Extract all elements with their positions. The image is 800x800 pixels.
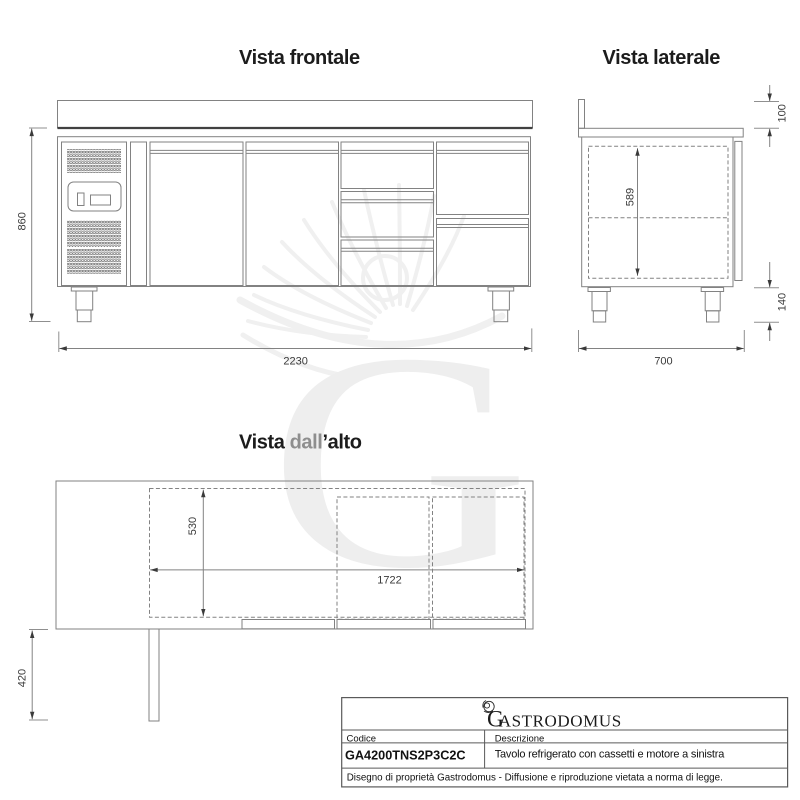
svg-text:Vista laterale: Vista laterale xyxy=(603,47,721,69)
svg-text:1722: 1722 xyxy=(377,575,401,587)
svg-text:Disegno di proprietà Gastrodom: Disegno di proprietà Gastrodomus - Diffu… xyxy=(347,772,723,783)
svg-text:ASTRODOMUS: ASTRODOMUS xyxy=(499,712,622,731)
svg-text:Descrizione: Descrizione xyxy=(495,734,545,745)
svg-text:589: 589 xyxy=(625,188,637,206)
svg-text:Codice: Codice xyxy=(347,733,377,744)
svg-text:140: 140 xyxy=(776,293,788,311)
svg-text:Vista dall’alto: Vista dall’alto xyxy=(239,432,362,454)
svg-text:860: 860 xyxy=(17,212,29,230)
svg-text:2230: 2230 xyxy=(283,355,307,367)
svg-text:Tavolo refrigerato con cassett: Tavolo refrigerato con cassetti e motore… xyxy=(495,749,726,761)
svg-text:700: 700 xyxy=(654,355,672,367)
svg-text:530: 530 xyxy=(187,517,199,535)
svg-text:100: 100 xyxy=(776,104,788,122)
svg-text:Vista frontale: Vista frontale xyxy=(239,47,360,69)
svg-text:GA4200TNS2P3C2C: GA4200TNS2P3C2C xyxy=(345,748,466,762)
svg-text:420: 420 xyxy=(17,669,29,687)
